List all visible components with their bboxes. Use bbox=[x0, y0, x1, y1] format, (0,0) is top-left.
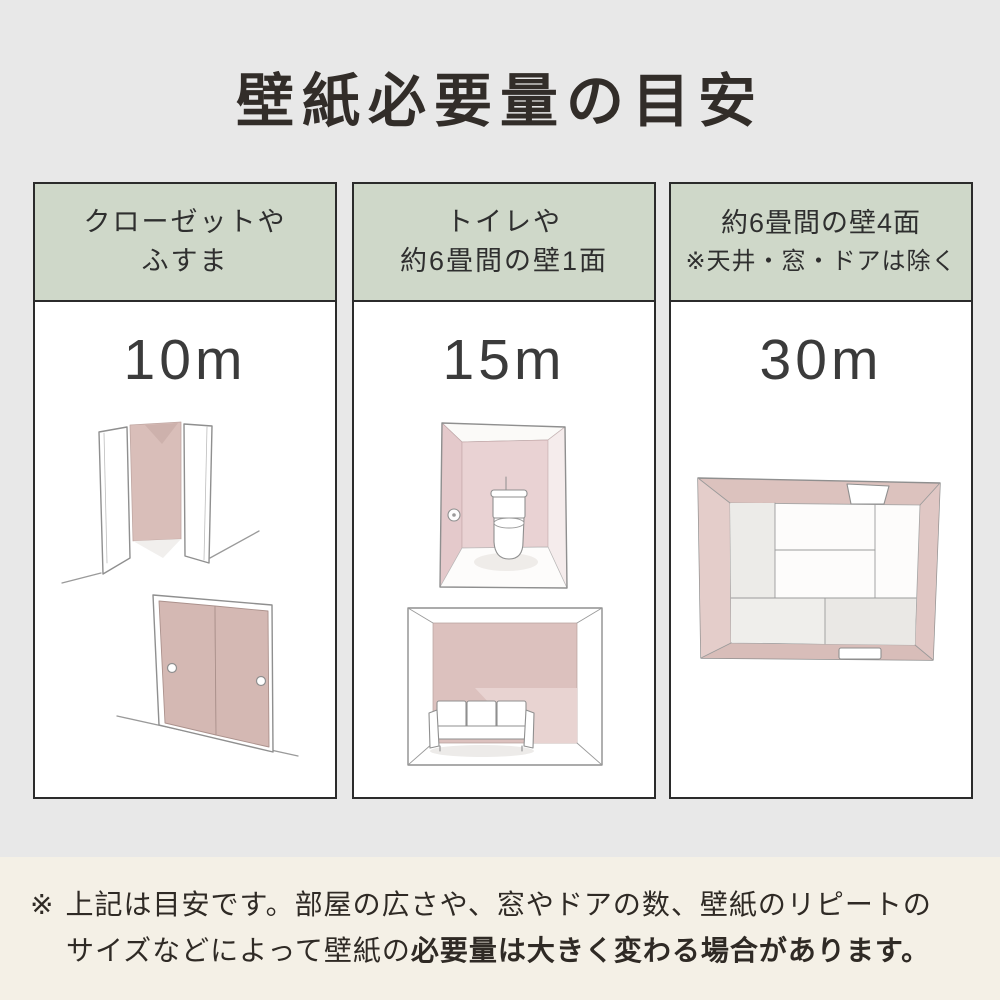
column-toilet-wall: トイレや 約6畳間の壁1面 15m bbox=[352, 182, 656, 799]
column-header-line2: ※天井・窓・ドアは除く bbox=[685, 249, 956, 275]
column-closet-header: クローゼットや ふすま bbox=[35, 184, 335, 302]
closet-illustration bbox=[62, 422, 259, 583]
room-wall-illustration bbox=[408, 608, 602, 765]
column-header-line1: 約6畳間の壁4面 bbox=[721, 209, 921, 239]
toilet-and-room-illustration bbox=[354, 302, 654, 797]
column-four-walls-header: 約6畳間の壁4面 ※天井・窓・ドアは除く bbox=[671, 184, 971, 302]
footnote-line2-regular: サイズなどによって壁紙の bbox=[66, 935, 411, 966]
closet-and-fusuma-illustration bbox=[35, 302, 335, 797]
column-toilet-header: トイレや 約6畳間の壁1面 bbox=[354, 184, 654, 302]
footnote-line1: ※上記は目安です。部屋の広さや、窓やドアの数、壁紙のリピートの bbox=[30, 883, 932, 923]
column-header-line1: トイレや bbox=[446, 208, 562, 238]
tatami-room-top-view-illustration bbox=[671, 302, 971, 797]
column-toilet-body: 15m bbox=[354, 302, 654, 797]
column-header-line2: ふすま bbox=[142, 247, 229, 277]
column-header-line1: クローゼットや bbox=[84, 208, 287, 238]
column-four-walls-body: 30m bbox=[671, 302, 971, 797]
footnote-line2-bold: 必要量は大きく変わる場合があります。 bbox=[411, 935, 930, 966]
door-opening bbox=[839, 648, 881, 659]
window-opening bbox=[847, 484, 889, 504]
reference-mark: ※ bbox=[30, 889, 54, 920]
footnote-line1-text: 上記は目安です。部屋の広さや、窓やドアの数、壁紙のリピートの bbox=[65, 889, 931, 920]
column-header-line2: 約6畳間の壁1面 bbox=[400, 247, 608, 277]
column-closet-fusuma: クローゼットや ふすま 10m bbox=[33, 182, 337, 799]
page-title: 壁紙必要量の目安 bbox=[0, 54, 1000, 138]
fusuma-illustration bbox=[117, 595, 298, 756]
toilet-room-illustration bbox=[440, 423, 567, 588]
footnote-line2: サイズなどによって壁紙の必要量は大きく変わる場合があります。 bbox=[66, 929, 930, 969]
column-closet-body: 10m bbox=[35, 302, 335, 797]
column-four-walls: 約6畳間の壁4面 ※天井・窓・ドアは除く 30m bbox=[669, 182, 973, 799]
footnote: ※上記は目安です。部屋の広さや、窓やドアの数、壁紙のリピートの サイズなどによっ… bbox=[0, 857, 1000, 1000]
